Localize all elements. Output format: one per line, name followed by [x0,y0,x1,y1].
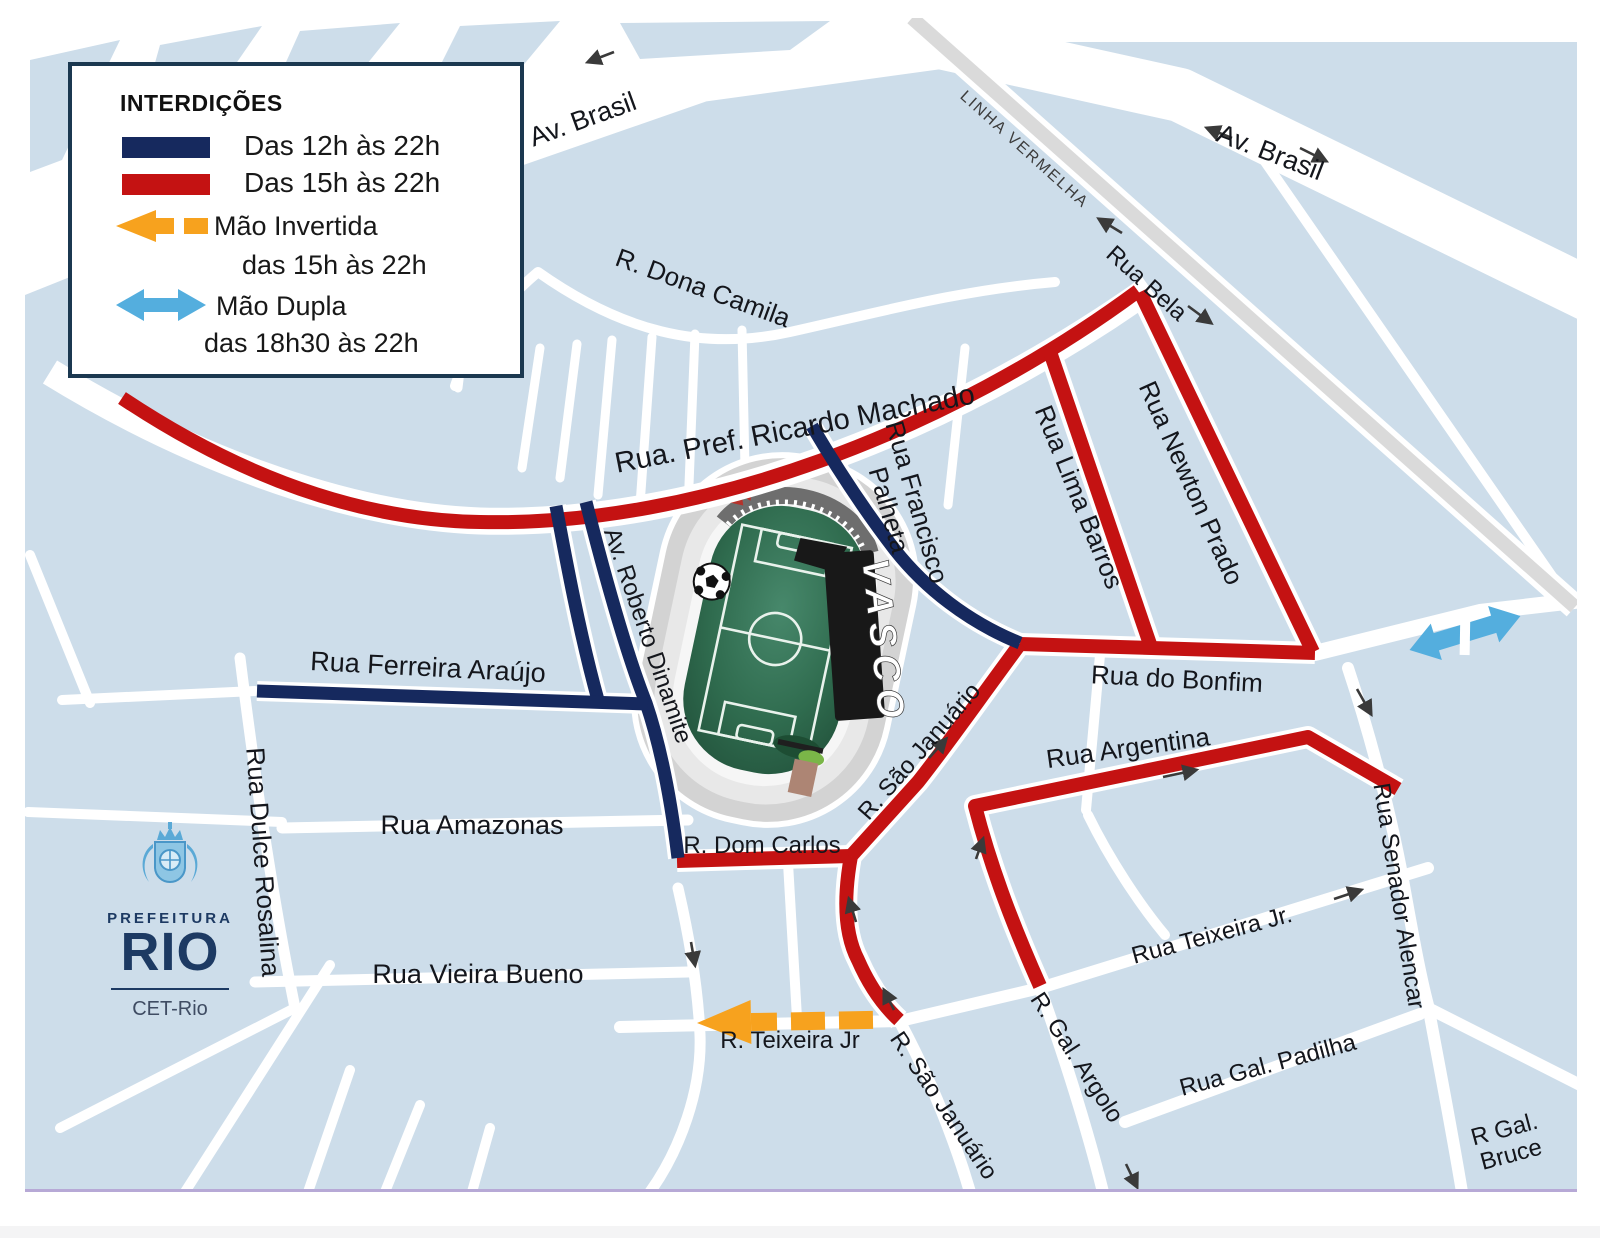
rio-crest-icon [127,822,213,906]
traffic-map-page: VASCO [0,0,1600,1238]
legend-label-mao-dupla: Mão Dupla [216,291,347,322]
logo-divider [111,988,229,990]
legend-box: INTERDIÇÕES Das 12h às 22h Das 15h às 22… [68,62,524,378]
logo-cet-rio-text: CET-Rio [95,998,245,1021]
grid-street [598,340,612,495]
crest-dolphin-left [143,844,153,882]
legend-sublabel-mao-invertida: das 15h às 22h [242,250,427,281]
arrow-dash [184,218,208,234]
grid-street [1088,815,1165,935]
grid-street [522,348,540,468]
street-label-rua-vieira-bueno: Rua Vieira Bueno [372,960,583,990]
arrow-bar [156,218,174,234]
grid-street [385,1105,420,1192]
arrow-gap [1460,611,1471,655]
grid-street [640,337,652,505]
grid-street [788,863,797,1018]
legend-label-12h: Das 12h às 22h [244,130,440,162]
grid-street [308,1070,350,1192]
grid-street [30,555,90,703]
logo-rio-text: RIO [95,927,245,978]
crest-dolphin-right [187,844,197,882]
street-label-r-dom-carlos: R. Dom Carlos [683,833,840,859]
dir-arrow-rua-bela [1188,306,1211,323]
grid-street [560,344,577,478]
road-r-gal-bruce [1428,1008,1600,1095]
arrow-head [116,210,156,242]
legend-label-mao-invertida: Mão Invertida [214,211,378,242]
crest [143,822,198,882]
grid-street [472,1128,490,1192]
bottom-strip [0,1226,1600,1238]
street-label-rua-amazonas: Rua Amazonas [380,811,563,841]
orange-arrow-icon [116,210,208,242]
grid-street [650,888,700,1192]
legend-mao-invertida-icon [112,207,212,245]
legend-title: INTERDIÇÕES [120,90,283,117]
grid-street [948,348,965,505]
crest-cross [168,822,172,829]
street-label-r-teixeira-jr: R. Teixeira Jr [720,1028,860,1054]
grid-street [688,334,695,510]
legend-label-15h: Das 15h às 22h [244,167,440,199]
prefeitura-rio-logo: PREFEITURA RIO CET-Rio [95,822,245,1021]
legend-swatch-12h [122,137,210,158]
blue-double-arrow-icon [116,289,206,321]
road-rua-do-bonfim [1020,644,1315,653]
legend-swatch-15h [122,174,210,195]
dir-arrow-linha-vermelha [1099,219,1122,233]
legend-mao-dupla-icon [112,287,212,323]
legend-sublabel-mao-dupla: das 18h30 às 22h [204,328,419,359]
dir-arrow-bottom [1126,1164,1137,1187]
